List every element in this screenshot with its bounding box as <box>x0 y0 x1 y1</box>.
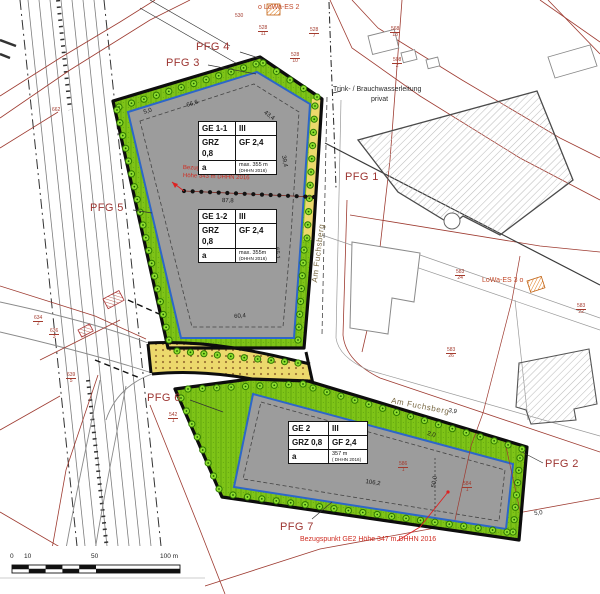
ge12-storeys: III <box>236 210 276 224</box>
measure-5-0-bottom: 5,0 <box>534 510 543 517</box>
parcel-634-2: 6342 <box>33 316 43 328</box>
parcel-583-24: 58324 <box>455 270 465 282</box>
ge11-gf: GF 2,4 <box>236 136 276 161</box>
ge12-grz: GRZ 0,8 <box>199 224 236 249</box>
ge11-grz: GRZ 0,8 <box>199 136 236 161</box>
building-lower-right-hatched <box>516 349 597 424</box>
parcel-583-26: 58326 <box>446 348 456 360</box>
measure-3-9: 3,9 <box>448 408 457 416</box>
cadastre-line-dashed <box>322 97 327 335</box>
scale-tick-0: 0 <box>10 553 14 560</box>
lowa-es2-label: o LoWa-ES 2 <box>258 4 299 12</box>
ge12-name: GE 1-2 <box>199 210 236 224</box>
parcel-636-3: 6363 <box>49 329 59 341</box>
building-l-shape <box>350 242 420 334</box>
pfg1-label: PFG 1 <box>345 171 379 183</box>
ge11-height-cell: max. 355 m(DHHN 2016) <box>236 161 276 174</box>
ge11-ref: a <box>199 161 236 174</box>
development-plan-map: PFG 4 PFG 3 PFG 5 PFG 1 PFG 6 PFG 2 PFG … <box>0 0 600 594</box>
railway-band <box>28 0 156 594</box>
scale-tick-100: 100 m <box>160 553 178 560</box>
scale-tick-50: 50 <box>91 553 98 560</box>
ge12-gf: GF 2,4 <box>236 224 276 249</box>
ge2-height-cell: 357 m( DHHN 2016) <box>329 450 367 463</box>
ge11-name: GE 1-1 <box>199 122 236 136</box>
ge2-ref: a <box>289 450 329 463</box>
measure-60-4: 60,4 <box>234 313 246 320</box>
parcel-639-5: 6395 <box>66 373 76 385</box>
ge2-name: GE 2 <box>289 422 329 436</box>
water-pipe-label-line2: privat <box>371 96 388 104</box>
parcel-528-11: 52811 <box>258 26 268 38</box>
ref-point-lower: Bezugspunkt GE2 Höhe 347 m DHHN 2016 <box>300 536 436 544</box>
pfg6-label: PFG 6 <box>147 392 181 404</box>
ge12-ref: a <box>199 249 236 262</box>
small-buildings <box>368 29 597 78</box>
parcel-542-1: 5421 <box>168 413 178 425</box>
pfg3-label: PFG 3 <box>166 57 200 69</box>
ge2-grz: GRZ 0,8 <box>289 436 329 450</box>
parcel-586-1: 5861 <box>398 462 408 474</box>
parcel-568-13: 56813 <box>390 27 400 39</box>
railway-edges <box>0 0 166 594</box>
parcel-662: 662 <box>52 108 60 113</box>
parcel-528-7: 5287 <box>309 28 319 40</box>
measure-87-8: 87,8 <box>222 198 234 205</box>
pfg2-label: PFG 2 <box>545 458 579 470</box>
ge2-gf: GF 2,4 <box>329 436 367 450</box>
pfg4-label: PFG 4 <box>196 41 230 53</box>
ge11-storeys: III <box>236 122 276 136</box>
water-pipe-label-line1: Trink- / Brauchwasserleitung <box>333 86 421 94</box>
parcel-583-22: 58322 <box>576 304 586 316</box>
building-large-hatched <box>358 91 573 235</box>
parcel-584-1: 5841 <box>462 482 472 494</box>
pfg5-label: PFG 5 <box>90 202 124 214</box>
pfg7-label: PFG 7 <box>280 521 314 533</box>
water-pipe-line <box>329 2 336 188</box>
ge12-table: GE 1-2 III GRZ 0,8 GF 2,4 a max. 355m(DH… <box>198 209 277 263</box>
lowa-es3-label: LoWa-ES 3 o <box>482 277 523 285</box>
scale-tick-10: 10 <box>24 553 31 560</box>
ge2-storeys: III <box>329 422 367 436</box>
building-silo <box>444 213 460 229</box>
parcel-528-10: 52810 <box>290 53 300 65</box>
ge11-table: GE 1-1 III GRZ 0,8 GF 2,4 a max. 355 m(D… <box>198 121 277 175</box>
site-plan-drawing <box>0 0 600 594</box>
parcel-508-2: 5082 <box>392 58 402 70</box>
parcel-530: 530 <box>235 14 243 19</box>
ge2-table: GE 2 III GRZ 0,8 GF 2,4 a 357 m( DHHN 20… <box>288 421 368 464</box>
ge12-height-cell: max. 355m(DHHN 2016) <box>236 249 276 262</box>
